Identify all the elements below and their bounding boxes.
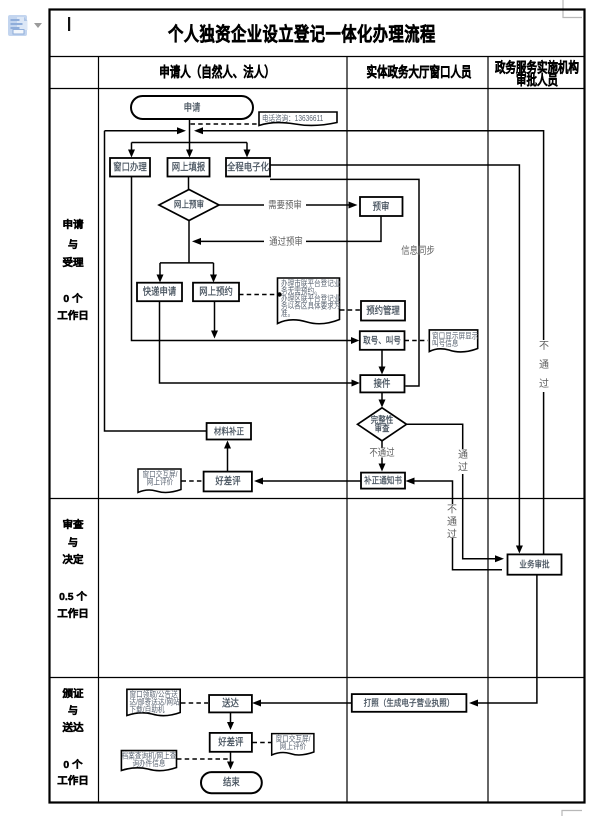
svg-text:网上预审: 网上预审	[174, 199, 204, 210]
svg-text:过: 过	[447, 528, 457, 541]
svg-text:网上预约: 网上预约	[199, 285, 233, 298]
svg-text:送达: 送达	[222, 697, 239, 710]
svg-text:业务审批: 业务审批	[519, 559, 549, 570]
svg-text:好差评: 好差评	[218, 736, 243, 749]
svg-text:申请: 申请	[184, 101, 201, 114]
svg-text:颁证: 颁证	[63, 687, 84, 700]
svg-text:通过预审: 通过预审	[269, 235, 303, 248]
svg-text:送达: 送达	[61, 721, 83, 734]
svg-text:预审: 预审	[373, 200, 390, 213]
svg-text:窗口办理: 窗口办理	[113, 161, 147, 174]
svg-text:不通过: 不通过	[369, 446, 394, 459]
svg-text:不: 不	[447, 505, 457, 516]
svg-text:准。: 准。	[281, 308, 294, 318]
svg-text:工作日: 工作日	[57, 309, 89, 322]
svg-text:不: 不	[539, 341, 549, 352]
svg-text:过: 过	[539, 377, 549, 390]
svg-text:与: 与	[68, 704, 78, 717]
svg-text:过: 过	[458, 461, 468, 474]
svg-text:电话咨询：13636611: 电话咨询：13636611	[262, 113, 323, 123]
svg-text:申请人（自然人、法人）: 申请人（自然人、法人）	[159, 64, 275, 80]
svg-text:通: 通	[539, 359, 549, 371]
svg-text:网上评价: 网上评价	[147, 478, 174, 487]
svg-text:个人独资企业设立登记一体化办理流程: 个人独资企业设立登记一体化办理流程	[167, 23, 436, 46]
svg-text:工作日: 工作日	[57, 774, 89, 787]
svg-text:审批人员: 审批人员	[516, 72, 558, 88]
svg-text:实体政务大厅窗口人员: 实体政务大厅窗口人员	[367, 64, 472, 80]
svg-text:下载/自助机: 下载/自助机	[130, 704, 165, 714]
svg-text:需要预审: 需要预审	[268, 199, 302, 212]
svg-text:网上评价: 网上评价	[280, 742, 307, 751]
svg-text:叫号信息: 叫号信息	[432, 338, 459, 348]
svg-text:预约管理: 预约管理	[366, 304, 400, 317]
svg-text:网上填报: 网上填报	[172, 161, 206, 174]
svg-text:结束: 结束	[223, 776, 240, 789]
svg-text:全程电子化: 全程电子化	[227, 161, 269, 174]
svg-text:快递申请: 快递申请	[143, 285, 177, 298]
svg-text:决定: 决定	[63, 553, 84, 566]
svg-text:0.5 个: 0.5 个	[59, 590, 88, 603]
svg-text:好差评: 好差评	[215, 475, 240, 488]
svg-text:补正通知书: 补正通知书	[364, 475, 402, 486]
svg-text:通: 通	[447, 516, 457, 528]
svg-text:与: 与	[68, 536, 78, 549]
svg-text:审查: 审查	[63, 518, 85, 531]
svg-text:受理: 受理	[63, 256, 84, 269]
svg-text:通: 通	[458, 449, 468, 461]
svg-text:与: 与	[68, 238, 78, 251]
svg-text:0 个: 0 个	[63, 758, 83, 771]
svg-text:工作日: 工作日	[57, 607, 89, 620]
svg-text:审查: 审查	[374, 423, 389, 434]
svg-text:询办件信息: 询办件信息	[132, 758, 165, 768]
svg-text:材料补正: 材料补正	[214, 426, 244, 437]
svg-text:打照（生成电子营业执照）: 打照（生成电子营业执照）	[364, 697, 455, 708]
svg-text:取号、叫号: 取号、叫号	[363, 336, 401, 346]
svg-text:接件: 接件	[374, 377, 391, 390]
svg-text:0 个: 0 个	[63, 292, 83, 305]
svg-text:申请: 申请	[63, 218, 84, 231]
svg-text:信息同步: 信息同步	[401, 244, 435, 257]
